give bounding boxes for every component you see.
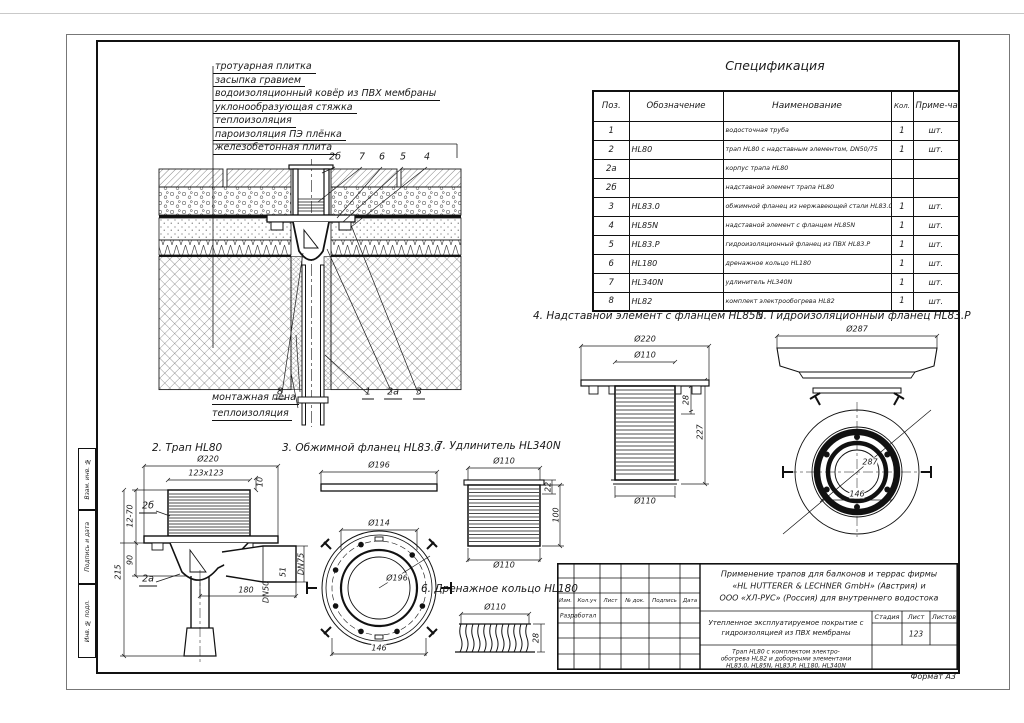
section-callout: 2а bbox=[384, 387, 402, 400]
spec-table-body: 1 водосточная труба 1 шт. 2 HL80 трап HL… bbox=[593, 121, 959, 311]
dim-label: Ø110 bbox=[634, 351, 656, 360]
dim-label: 28 bbox=[532, 633, 541, 643]
spec-cell-designation: HL83.0 bbox=[629, 197, 723, 216]
spec-row: 7 HL340N удлинитель HL340N 1 шт. bbox=[593, 273, 959, 292]
tb-rev-header: Подпись bbox=[652, 598, 677, 604]
tb-rev-header: Кол.уч bbox=[577, 598, 596, 604]
tb-project-title-line: Применение трапов для балконов и террас … bbox=[721, 570, 937, 579]
dim-label: Ø220 bbox=[197, 455, 219, 464]
dim-label: 10 bbox=[256, 477, 265, 487]
spec-cell-pos: 7 bbox=[593, 273, 629, 292]
tb-project-title-line: «HL HUTTERER & LECHNER GmbH» (Австрия) и bbox=[732, 582, 925, 591]
spec-row: 2б надставной элемент трапа HL80 bbox=[593, 178, 959, 197]
spec-cell-pos: 2б bbox=[593, 178, 629, 197]
tb-sheets-header: Листов bbox=[932, 613, 956, 621]
dim-label: 90 bbox=[126, 555, 135, 565]
section-callout: 6 bbox=[379, 152, 385, 163]
tb-role-developed: Разработал bbox=[560, 612, 596, 619]
spec-cell-note: шт. bbox=[913, 140, 959, 159]
spec-cell-qty: 1 bbox=[891, 273, 913, 292]
section-callout: 1 bbox=[362, 387, 374, 400]
dim-label: Ø110 bbox=[634, 497, 656, 506]
spec-cell-note: шт. bbox=[913, 273, 959, 292]
detail2-drawing bbox=[118, 450, 313, 668]
spec-cell-designation: HL82 bbox=[629, 292, 723, 311]
spec-cell-qty: 1 bbox=[891, 292, 913, 311]
spec-col-pos: Поз. bbox=[593, 91, 629, 121]
spec-cell-designation: HL85N bbox=[629, 216, 723, 235]
tb-project-title-line: ООО «ХЛ-РУС» (Россия) для внутреннего во… bbox=[720, 594, 939, 603]
main-section-drawing bbox=[145, 155, 475, 430]
spec-cell-designation: HL180 bbox=[629, 254, 723, 273]
dim-label: Ø220 bbox=[634, 335, 656, 344]
spec-cell-note: шт. bbox=[913, 197, 959, 216]
spec-cell-pos: 5 bbox=[593, 235, 629, 254]
dim-label: 287 bbox=[862, 458, 877, 467]
dim-label: 146 bbox=[371, 644, 386, 653]
dim-label: 28 bbox=[682, 395, 691, 405]
stamp-label: Подпись и дата bbox=[84, 522, 91, 572]
dim-label: 123x123 bbox=[188, 469, 223, 478]
spec-cell-designation bbox=[629, 178, 723, 197]
spec-cell-name: надставной элемент трапа HL80 bbox=[723, 178, 891, 197]
spec-col-designation: Обозначение bbox=[629, 91, 723, 121]
spec-cell-pos: 4 bbox=[593, 216, 629, 235]
dim-label: Ø196 bbox=[386, 574, 408, 583]
spec-cell-pos: 1 bbox=[593, 121, 629, 140]
part-callout: 2б bbox=[139, 501, 157, 514]
spec-cell-pos: 2а bbox=[593, 159, 629, 178]
tb-doc-title-line: HL83.0, HL85N, HL83.P, HL180, HL340N bbox=[726, 663, 846, 670]
detail6-drawing bbox=[425, 590, 560, 665]
section-callout: 4 bbox=[424, 152, 430, 163]
section-callout: 2б bbox=[329, 152, 341, 163]
dim-label: 146 bbox=[849, 490, 864, 499]
detail5-title: 5. Гидроизоляционный фланец HL83.P bbox=[757, 310, 971, 322]
spec-cell-pos: 6 bbox=[593, 254, 629, 273]
dim-label: 227 bbox=[696, 424, 705, 439]
spec-col-name: Наименование bbox=[723, 91, 891, 121]
spec-cell-pos: 2 bbox=[593, 140, 629, 159]
dim-label: Ø196 bbox=[368, 461, 390, 470]
spec-cell-name: обжимной фланец из нержавеющей стали HL8… bbox=[723, 197, 891, 216]
format-label: Формат А3 bbox=[860, 672, 956, 681]
spec-cell-designation: HL80 bbox=[629, 140, 723, 159]
spec-row: 3 HL83.0 обжимной фланец из нержавеющей … bbox=[593, 197, 959, 216]
dim-label: 51 bbox=[279, 567, 288, 577]
spec-cell-qty: 1 bbox=[891, 235, 913, 254]
dim-label: 100 bbox=[552, 507, 561, 522]
spec-col-qty: Кол. bbox=[891, 91, 913, 121]
spec-row: 1 водосточная труба 1 шт. bbox=[593, 121, 959, 140]
spec-cell-name: корпус трапа HL80 bbox=[723, 159, 891, 178]
detail5-drawing bbox=[755, 322, 960, 537]
spec-cell-qty: 1 bbox=[891, 216, 913, 235]
stamp-box-vzam: Взам. инв. № bbox=[78, 448, 96, 510]
spec-cell-qty: 1 bbox=[891, 254, 913, 273]
spec-cell-designation bbox=[629, 159, 723, 178]
spec-cell-qty bbox=[891, 178, 913, 197]
spec-cell-note: шт. bbox=[913, 121, 959, 140]
spec-cell-name: трап HL80 с надставным элементом, DN50/7… bbox=[723, 140, 891, 159]
dim-label: Ø287 bbox=[846, 325, 868, 334]
spec-cell-note: шт. bbox=[913, 216, 959, 235]
tb-rev-header: № док. bbox=[625, 598, 645, 604]
stamp-box-podpis: Подпись и дата bbox=[78, 510, 96, 584]
detail7-drawing bbox=[440, 448, 570, 573]
spec-row: 8 HL82 комплект электрообогрева HL82 1 ш… bbox=[593, 292, 959, 311]
sheet-edge-line bbox=[0, 13, 1024, 14]
spec-table: Поз. Обозначение Наименование Кол. Приме… bbox=[592, 90, 960, 312]
spec-cell-designation: HL83.P bbox=[629, 235, 723, 254]
tb-sheet-value: 123 bbox=[909, 630, 923, 639]
tb-stage-header: Стадия bbox=[875, 613, 900, 621]
section-callout: 5 bbox=[400, 152, 406, 163]
tb-object-title-line: Утепленное эксплуатируемое покрытие с bbox=[708, 619, 863, 627]
detail4-title: 4. Надставной элемент с фланцем HL85N bbox=[533, 310, 763, 322]
tb-sheet-header: Лист bbox=[908, 613, 924, 621]
dim-label: DN50 bbox=[262, 581, 271, 603]
title-block: Изм. Кол.уч Лист № док. Подпись Дата Раз… bbox=[557, 563, 958, 670]
spec-cell-qty bbox=[891, 159, 913, 178]
dim-label: 22 bbox=[544, 482, 553, 492]
section-callout: 3 bbox=[413, 387, 425, 400]
spec-header-row: Поз. Обозначение Наименование Кол. Приме… bbox=[593, 91, 959, 121]
spec-cell-name: надставной элемент с фланцем HL85N bbox=[723, 216, 891, 235]
dim-label: Ø110 bbox=[493, 561, 515, 570]
spec-cell-pos: 8 bbox=[593, 292, 629, 311]
spec-cell-qty: 1 bbox=[891, 140, 913, 159]
spec-row: 6 HL180 дренажное кольцо HL180 1 шт. bbox=[593, 254, 959, 273]
stamp-label: Взам. инв. № bbox=[84, 458, 91, 500]
spec-cell-qty: 1 bbox=[891, 197, 913, 216]
tb-doc-title-line: обогрева HL82 и доборными элементами bbox=[721, 656, 852, 663]
spec-cell-designation bbox=[629, 121, 723, 140]
spec-cell-note: шт. bbox=[913, 254, 959, 273]
spec-col-note: Приме-чание bbox=[913, 91, 959, 121]
tb-rev-header: Лист bbox=[604, 598, 618, 604]
dim-label: 215 bbox=[114, 564, 123, 579]
section-callout: 7 bbox=[359, 152, 365, 163]
spec-cell-note: шт. bbox=[913, 292, 959, 311]
dim-label: 12-70 bbox=[126, 504, 135, 527]
spec-cell-pos: 3 bbox=[593, 197, 629, 216]
spec-cell-name: удлинитель HL340N bbox=[723, 273, 891, 292]
tb-rev-header: Изм. bbox=[559, 598, 572, 604]
spec-cell-name: комплект электрообогрева HL82 bbox=[723, 292, 891, 311]
spec-row: 4 HL85N надставной элемент с фланцем HL8… bbox=[593, 216, 959, 235]
stamp-box-inv: Инв. № подл. bbox=[78, 584, 96, 658]
spec-cell-name: дренажное кольцо HL180 bbox=[723, 254, 891, 273]
spec-row: 5 HL83.P гидроизоляционный фланец из ПВХ… bbox=[593, 235, 959, 254]
spec-cell-designation: HL340N bbox=[629, 273, 723, 292]
spec-row: 2а корпус трапа HL80 bbox=[593, 159, 959, 178]
spec-cell-note bbox=[913, 159, 959, 178]
dim-label: Ø110 bbox=[493, 457, 515, 466]
spec-cell-qty: 1 bbox=[891, 121, 913, 140]
spec-cell-note bbox=[913, 178, 959, 197]
stamp-label: Инв. № подл. bbox=[84, 600, 91, 642]
dim-label: Ø114 bbox=[368, 519, 390, 528]
dim-label: Ø110 bbox=[484, 603, 506, 612]
dim-label: 180 bbox=[238, 586, 253, 595]
insulation-label: теплоизоляция bbox=[212, 408, 292, 421]
tb-object-title-line: гидроизоляцией из ПВХ мембраны bbox=[721, 629, 850, 637]
foam-label: монтажная пена bbox=[212, 392, 299, 405]
tb-rev-header: Дата bbox=[683, 598, 697, 604]
tb-doc-title-line: Трап HL80 с комплектом электро- bbox=[732, 649, 840, 656]
spec-row: 2 HL80 трап HL80 с надставным элементом,… bbox=[593, 140, 959, 159]
spec-cell-name: гидроизоляционный фланец из ПВХ HL83.P bbox=[723, 235, 891, 254]
spec-cell-name: водосточная труба bbox=[723, 121, 891, 140]
drawing-sheet: Взам. инв. № Подпись и дата Инв. № подл.… bbox=[0, 0, 1024, 723]
spec-cell-note: шт. bbox=[913, 235, 959, 254]
part-callout: 2а bbox=[139, 574, 157, 587]
spec-title: Спецификация bbox=[592, 58, 958, 73]
